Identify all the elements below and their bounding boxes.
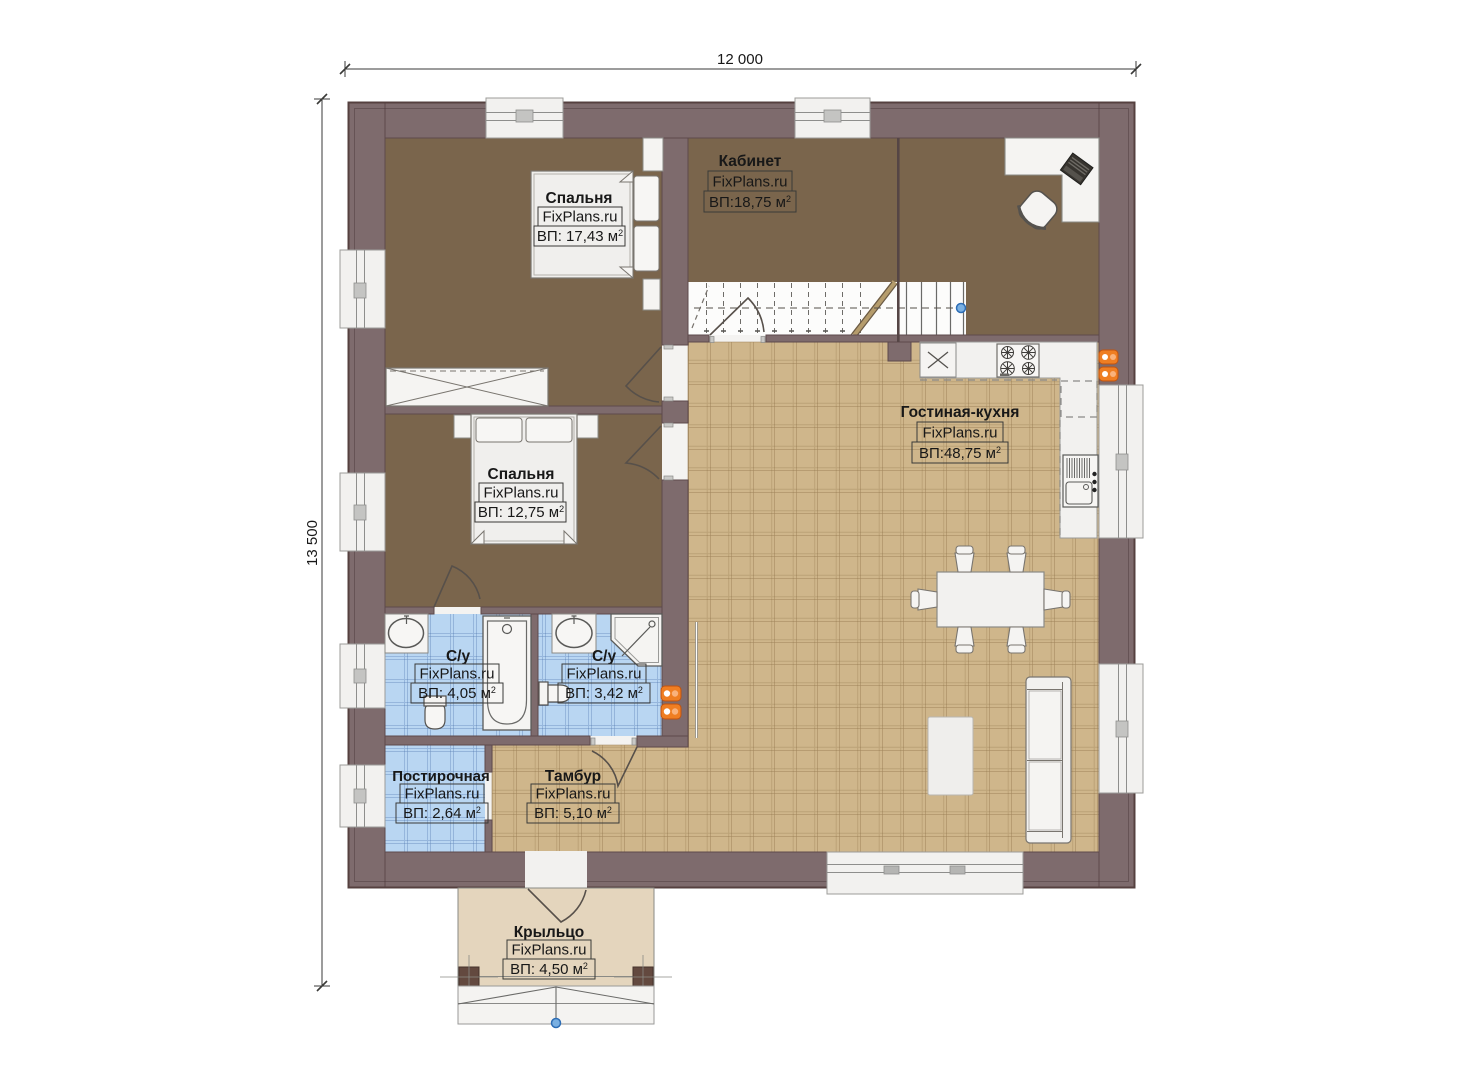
svg-text:ВП:48,75 м2: ВП:48,75 м2: [919, 445, 1001, 462]
svg-text:12 000: 12 000: [717, 51, 763, 68]
svg-text:FixPlans.ru: FixPlans.ru: [511, 942, 586, 959]
svg-text:ВП: 4,50 м2: ВП: 4,50 м2: [510, 961, 588, 978]
svg-text:ВП: 17,43 м2: ВП: 17,43 м2: [537, 228, 623, 245]
svg-text:ВП:18,75 м2: ВП:18,75 м2: [709, 194, 791, 211]
svg-text:FixPlans.ru: FixPlans.ru: [419, 666, 494, 683]
svg-text:ВП: 5,10 м2: ВП: 5,10 м2: [534, 805, 612, 822]
svg-text:ВП: 4,05 м2: ВП: 4,05 м2: [418, 685, 496, 702]
svg-text:С/у: С/у: [446, 648, 471, 665]
svg-text:Спальня: Спальня: [488, 466, 555, 483]
svg-text:13 500: 13 500: [304, 520, 321, 566]
svg-text:Кабинет: Кабинет: [719, 153, 782, 170]
svg-text:ВП: 12,75 м2: ВП: 12,75 м2: [478, 504, 564, 521]
svg-text:Постирочная: Постирочная: [392, 768, 489, 785]
svg-text:FixPlans.ru: FixPlans.ru: [922, 425, 997, 442]
svg-text:FixPlans.ru: FixPlans.ru: [404, 786, 479, 803]
svg-text:ВП: 2,64 м2: ВП: 2,64 м2: [403, 805, 481, 822]
svg-text:FixPlans.ru: FixPlans.ru: [566, 666, 641, 683]
svg-text:FixPlans.ru: FixPlans.ru: [712, 174, 787, 191]
svg-text:ВП: 3,42 м2: ВП: 3,42 м2: [565, 685, 643, 702]
svg-text:Гостиная-кухня: Гостиная-кухня: [901, 404, 1020, 421]
svg-text:Тамбур: Тамбур: [545, 768, 601, 785]
svg-text:С/у: С/у: [592, 648, 617, 665]
svg-text:Крыльцо: Крыльцо: [514, 924, 585, 941]
svg-text:FixPlans.ru: FixPlans.ru: [483, 485, 558, 502]
svg-text:Спальня: Спальня: [546, 190, 613, 207]
svg-text:FixPlans.ru: FixPlans.ru: [542, 209, 617, 226]
svg-text:FixPlans.ru: FixPlans.ru: [535, 786, 610, 803]
